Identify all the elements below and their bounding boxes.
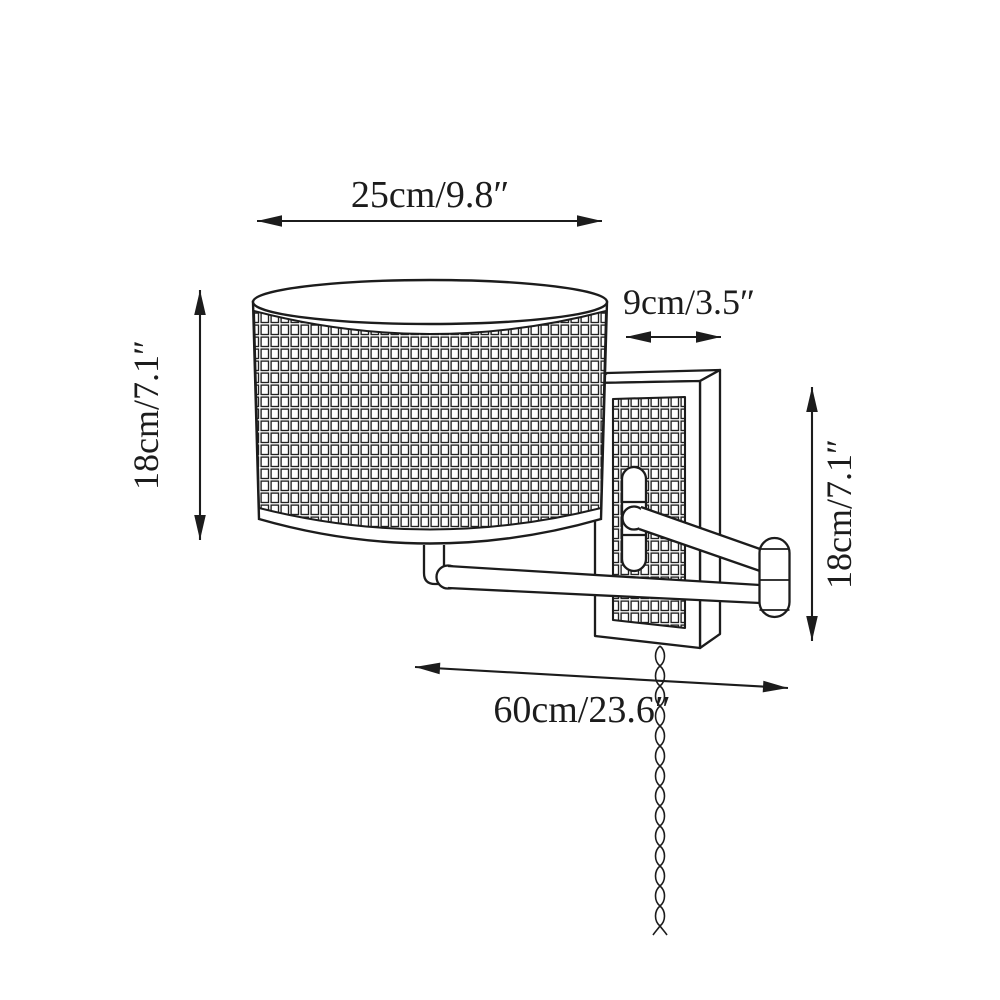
cord-end-splay	[653, 926, 667, 935]
shade-height-label: 18cm/7.1″	[126, 340, 166, 490]
lamp-dimension-diagram: 25cm/9.8″ 18cm/7.1″ 9cm/3.5″ 18cm/7.1″ 6…	[0, 0, 1000, 1000]
plate-height-dimension: 18cm/7.1″	[812, 387, 859, 641]
extension-dimension: 60cm/23.6″	[415, 667, 788, 731]
diagram-canvas: 25cm/9.8″ 18cm/7.1″ 9cm/3.5″ 18cm/7.1″ 6…	[0, 0, 1000, 1000]
plate-side-face	[700, 370, 720, 648]
plate-height-label: 18cm/7.1″	[819, 439, 859, 589]
shade-width-dimension: 25cm/9.8″	[257, 174, 602, 221]
plate-width-dimension: 9cm/3.5″	[623, 282, 755, 337]
shade-width-label: 25cm/9.8″	[351, 174, 509, 216]
shade-height-dimension: 18cm/7.1″	[126, 290, 200, 540]
extension-arrow	[415, 667, 788, 688]
cord-strand-right	[656, 646, 665, 926]
shade-top-rim	[253, 280, 607, 324]
plate-width-label: 9cm/3.5″	[623, 282, 755, 322]
drum-shade	[250, 280, 610, 555]
wall-mount-plate	[595, 370, 720, 648]
extension-label: 60cm/23.6″	[493, 689, 670, 731]
